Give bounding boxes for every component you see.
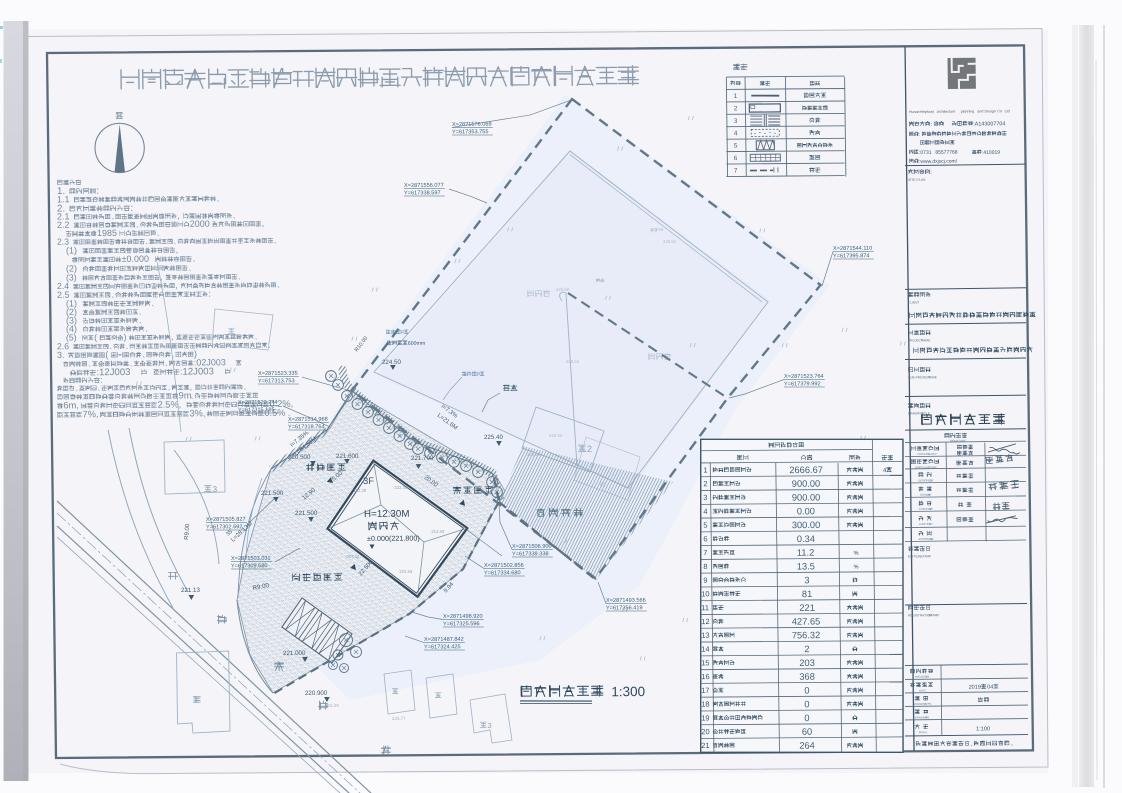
svg-text:,: , — [177, 211, 180, 221]
svg-text:%: % — [854, 551, 859, 557]
svg-text:,: , — [262, 218, 265, 228]
svg-text:3%,: 3%, — [189, 408, 205, 418]
svg-text:2: 2 — [703, 479, 707, 488]
svg-text:Y=617315.185: Y=617315.185 — [238, 407, 275, 413]
svg-text:221.700: 221.700 — [411, 455, 434, 462]
svg-text:BY: BY — [930, 478, 934, 482]
svg-text:221.500: 221.500 — [295, 510, 318, 517]
svg-text::: : — [931, 122, 933, 128]
svg-text:221.600: 221.600 — [336, 453, 359, 460]
svg-text:368: 368 — [799, 672, 815, 682]
svg-text:5: 5 — [703, 521, 707, 530]
svg-text:CHIEF: CHIEF — [929, 465, 937, 469]
svg-text:221.500: 221.500 — [261, 490, 284, 497]
svg-text:21: 21 — [701, 741, 709, 750]
svg-text:,: , — [175, 280, 178, 290]
svg-text:2: 2 — [734, 105, 738, 112]
svg-text::A143007704: :A143007704 — [973, 121, 1005, 127]
svg-text:300.00: 300.00 — [792, 520, 821, 530]
svg-text:(: ( — [105, 350, 108, 360]
svg-text:±0.000: ±0.000 — [122, 254, 150, 264]
svg-text:GROUP: GROUP — [927, 452, 937, 456]
svg-text:2.2: 2.2 — [57, 220, 70, 230]
svg-text:5: 5 — [734, 143, 738, 150]
svg-text:X=2871514.968: X=2871514.968 — [288, 417, 328, 423]
svg-text:7: 7 — [703, 548, 707, 557]
svg-text:BY: BY — [929, 522, 933, 526]
svg-text:0: 0 — [804, 685, 809, 695]
svg-text:3: 3 — [487, 721, 491, 730]
svg-text:6: 6 — [734, 155, 738, 162]
svg-text:224.50: 224.50 — [382, 359, 402, 366]
svg-text:X=2871544.110: X=2871544.110 — [833, 246, 872, 252]
svg-text:STAMP: STAMP — [921, 554, 932, 558]
svg-text:NAME: NAME — [921, 338, 930, 342]
svg-text:2000: 2000 — [190, 219, 210, 229]
svg-text:900.00: 900.00 — [792, 479, 821, 489]
svg-text:and: and — [977, 109, 983, 113]
svg-text:H=12.30M: H=12.30M — [364, 509, 410, 520]
svg-text:X=2871493.566: X=2871493.566 — [606, 598, 646, 604]
svg-text:8: 8 — [703, 562, 707, 571]
svg-text:X=2871487.842: X=2871487.842 — [424, 637, 464, 643]
svg-text:X=2871506.900: X=2871506.900 — [512, 544, 552, 550]
svg-text:17: 17 — [701, 686, 709, 695]
svg-text:Ltd: Ltd — [1005, 109, 1010, 113]
svg-text:221.000: 221.000 — [283, 650, 306, 657]
svg-text:·203.44: ·203.44 — [345, 554, 360, 559]
svg-text:85577768: 85577768 — [935, 150, 958, 156]
svg-text:6: 6 — [703, 534, 707, 543]
svg-text:18: 18 — [701, 700, 709, 709]
svg-text::: : — [100, 375, 103, 385]
svg-text:SCALE: SCALE — [919, 730, 928, 734]
svg-text:Y=617353.755: Y=617353.755 — [452, 129, 489, 135]
svg-text:Y=617356.419: Y=617356.419 — [606, 605, 643, 611]
svg-text:13: 13 — [701, 631, 709, 640]
svg-text::12J003: :12J003 — [180, 366, 214, 377]
svg-text:225.77: 225.77 — [392, 716, 406, 721]
svg-text:1:300: 1:300 — [611, 684, 645, 699]
svg-text:264: 264 — [799, 740, 815, 750]
svg-text:Y=617318.764: Y=617318.764 — [288, 424, 325, 430]
svg-text:04: 04 — [987, 684, 993, 690]
svg-text::www.dxjscj.com/: :www.dxjscj.com/ — [919, 159, 958, 165]
svg-text:225.58: 225.58 — [556, 287, 570, 292]
svg-text:20: 20 — [701, 727, 709, 736]
svg-text:11.2: 11.2 — [797, 548, 815, 558]
svg-text:0.00: 0.00 — [797, 506, 815, 516]
svg-text:13.5: 13.5 — [797, 561, 815, 571]
svg-text:elephant: elephant — [920, 110, 934, 114]
svg-text:·222.35: ·222.35 — [393, 485, 408, 490]
svg-text::410019: :410019 — [982, 150, 1000, 156]
svg-text:9: 9 — [703, 576, 707, 585]
svg-text:PLAN: PLAN — [917, 178, 926, 182]
svg-text:7%,: 7%, — [82, 409, 98, 419]
svg-text:(: ( — [94, 332, 97, 342]
svg-text:225.51: 225.51 — [663, 239, 677, 244]
svg-text:Y=617339.338: Y=617339.338 — [512, 551, 549, 557]
svg-text:3: 3 — [734, 118, 738, 125]
svg-text:81: 81 — [802, 589, 812, 599]
svg-text::0731: :0731 — [919, 150, 932, 156]
svg-text:,: , — [171, 332, 174, 342]
svg-text:3: 3 — [212, 484, 217, 494]
svg-text:X=2871503.031: X=2871503.031 — [231, 556, 271, 562]
svg-text:Y=617379.992: Y=617379.992 — [784, 381, 821, 387]
svg-text:4: 4 — [734, 130, 738, 137]
svg-text:10: 10 — [701, 589, 709, 598]
svg-text:DATE: DATE — [919, 688, 926, 692]
svg-text:·223.64: ·223.64 — [398, 569, 413, 574]
svg-text:221.13: 221.13 — [181, 587, 201, 594]
svg-text:X=2871576.069: X=2871576.069 — [452, 122, 492, 128]
svg-text::: : — [96, 186, 99, 197]
svg-text:,: , — [176, 245, 179, 255]
svg-text:X=2871523.764: X=2871523.764 — [784, 374, 824, 380]
svg-text:11: 11 — [701, 603, 709, 612]
svg-text:900.00: 900.00 — [792, 492, 821, 502]
svg-text:6m,: 6m, — [63, 400, 79, 410]
svg-text:220.900: 220.900 — [305, 690, 328, 697]
svg-text:3: 3 — [804, 575, 809, 585]
svg-text:±0.000(221.800): ±0.000(221.800) — [367, 534, 420, 543]
svg-text:Hunan: Hunan — [909, 110, 920, 114]
svg-text:NO.: NO. — [925, 715, 930, 719]
svg-text:architecture: architecture — [937, 110, 956, 114]
svg-text:600mm: 600mm — [408, 341, 425, 347]
svg-text:·212.44: ·212.44 — [430, 529, 445, 534]
svg-text::: : — [919, 132, 920, 138]
svg-text:Design: Design — [984, 109, 995, 113]
svg-text:756.32: 756.32 — [792, 630, 821, 640]
svg-text:1:100: 1:100 — [976, 726, 990, 732]
svg-text:X=2871505.827: X=2871505.827 — [206, 517, 246, 523]
svg-text:203: 203 — [799, 658, 815, 668]
svg-text:Y=617325.596: Y=617325.596 — [443, 621, 480, 627]
svg-text:Co.: Co. — [997, 109, 1003, 113]
svg-text::: : — [208, 289, 211, 299]
svg-text:X=2871523.335: X=2871523.335 — [258, 371, 298, 377]
svg-text:TYPE: TYPE — [925, 702, 932, 706]
svg-text:3F: 3F — [363, 476, 374, 487]
svg-text:DISCIPLINE: DISCIPLINE — [915, 465, 930, 469]
svg-text:0.34: 0.34 — [797, 534, 815, 544]
svg-text:BY: BY — [929, 507, 933, 511]
svg-text:225.52: 225.52 — [566, 359, 580, 364]
svg-text:BY: BY — [930, 537, 934, 541]
svg-text:1985: 1985 — [97, 228, 117, 238]
svg-text:): ) — [124, 332, 127, 342]
svg-text:2666.67: 2666.67 — [789, 465, 823, 475]
svg-text:12: 12 — [701, 617, 709, 626]
svg-text:X=2871502.856: X=2871502.856 — [484, 563, 524, 569]
svg-text:Y=617302.692: Y=617302.692 — [206, 524, 243, 530]
svg-text:Y=617313.753: Y=617313.753 — [258, 378, 295, 384]
svg-text:X=2871522.244: X=2871522.244 — [238, 400, 278, 406]
svg-text:225.40: 225.40 — [484, 434, 504, 441]
svg-text:3.: 3. — [57, 350, 65, 360]
svg-text:4: 4 — [703, 507, 707, 516]
svg-text::: : — [130, 203, 133, 214]
svg-text:NO.: NO. — [925, 675, 930, 679]
svg-text:%: % — [854, 564, 859, 570]
svg-text:60: 60 — [802, 727, 812, 737]
svg-text:Y=617309.680: Y=617309.680 — [231, 563, 268, 569]
svg-text:BY: BY — [928, 493, 932, 497]
svg-text:427.65: 427.65 — [792, 616, 821, 626]
svg-text:221: 221 — [799, 603, 815, 613]
svg-text:1: 1 — [703, 466, 707, 475]
svg-text:0: 0 — [804, 699, 809, 709]
svg-text:Y=617334.680: Y=617334.680 — [484, 570, 521, 576]
svg-text:NAME: NAME — [928, 375, 937, 379]
svg-text:16: 16 — [701, 672, 709, 681]
svg-text:225.54: 225.54 — [549, 433, 563, 438]
svg-text:7: 7 — [734, 168, 738, 175]
svg-text:0: 0 — [804, 713, 809, 723]
svg-text:Y=617338.597: Y=617338.597 — [404, 190, 441, 196]
svg-text:15: 15 — [701, 658, 709, 667]
svg-text:19: 19 — [701, 713, 709, 722]
svg-text:3: 3 — [703, 493, 707, 502]
svg-text:·222.28: ·222.28 — [352, 488, 367, 493]
svg-text:1: 1 — [734, 93, 738, 100]
svg-text:CLIENT: CLIENT — [908, 300, 919, 304]
svg-text:X=2871498.920: X=2871498.920 — [443, 614, 483, 620]
svg-text:2019: 2019 — [969, 685, 982, 691]
svg-text:(1): (1) — [66, 245, 77, 255]
svg-text:Y=617324.425: Y=617324.425 — [424, 644, 461, 650]
svg-text:R9.00: R9.00 — [184, 523, 191, 540]
svg-text:X=2871556.077: X=2871556.077 — [404, 183, 444, 189]
svg-text:STAMP: STAMP — [929, 613, 940, 617]
svg-text:planning: planning — [961, 109, 975, 113]
svg-text:2: 2 — [804, 644, 809, 654]
svg-text:2: 2 — [587, 444, 592, 454]
svg-text:SITE: SITE — [908, 178, 916, 182]
svg-text:Y=617395.874: Y=617395.874 — [833, 253, 870, 259]
svg-text:14: 14 — [701, 645, 709, 654]
svg-text:223.39: 223.39 — [325, 703, 339, 708]
